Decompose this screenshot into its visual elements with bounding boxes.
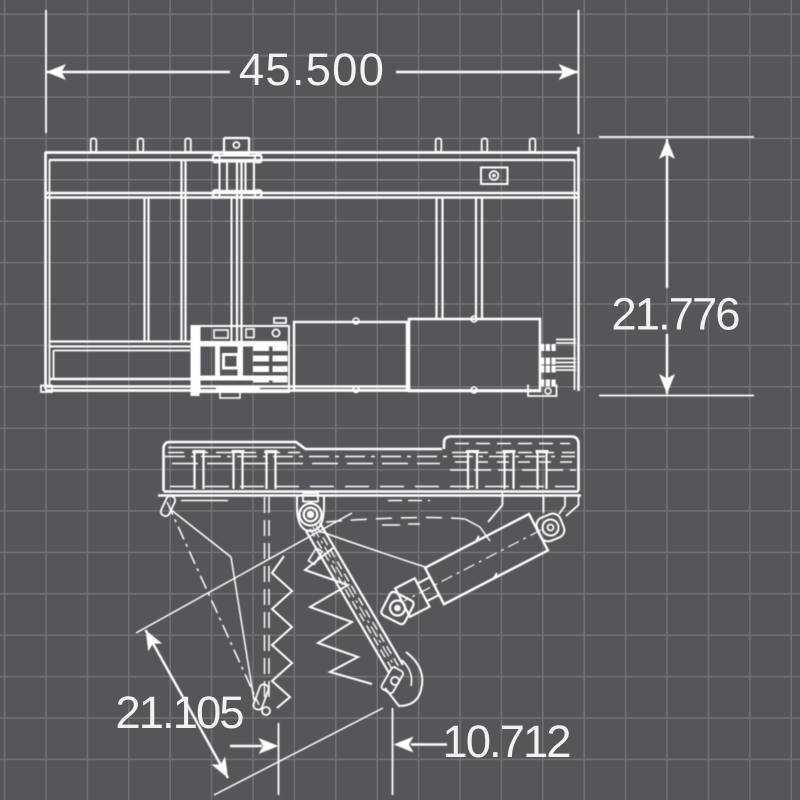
svg-text:10.712: 10.712: [442, 716, 570, 767]
svg-text:21.776: 21.776: [611, 289, 739, 340]
svg-text:45.500: 45.500: [239, 44, 385, 95]
svg-text:21.105: 21.105: [115, 687, 243, 738]
